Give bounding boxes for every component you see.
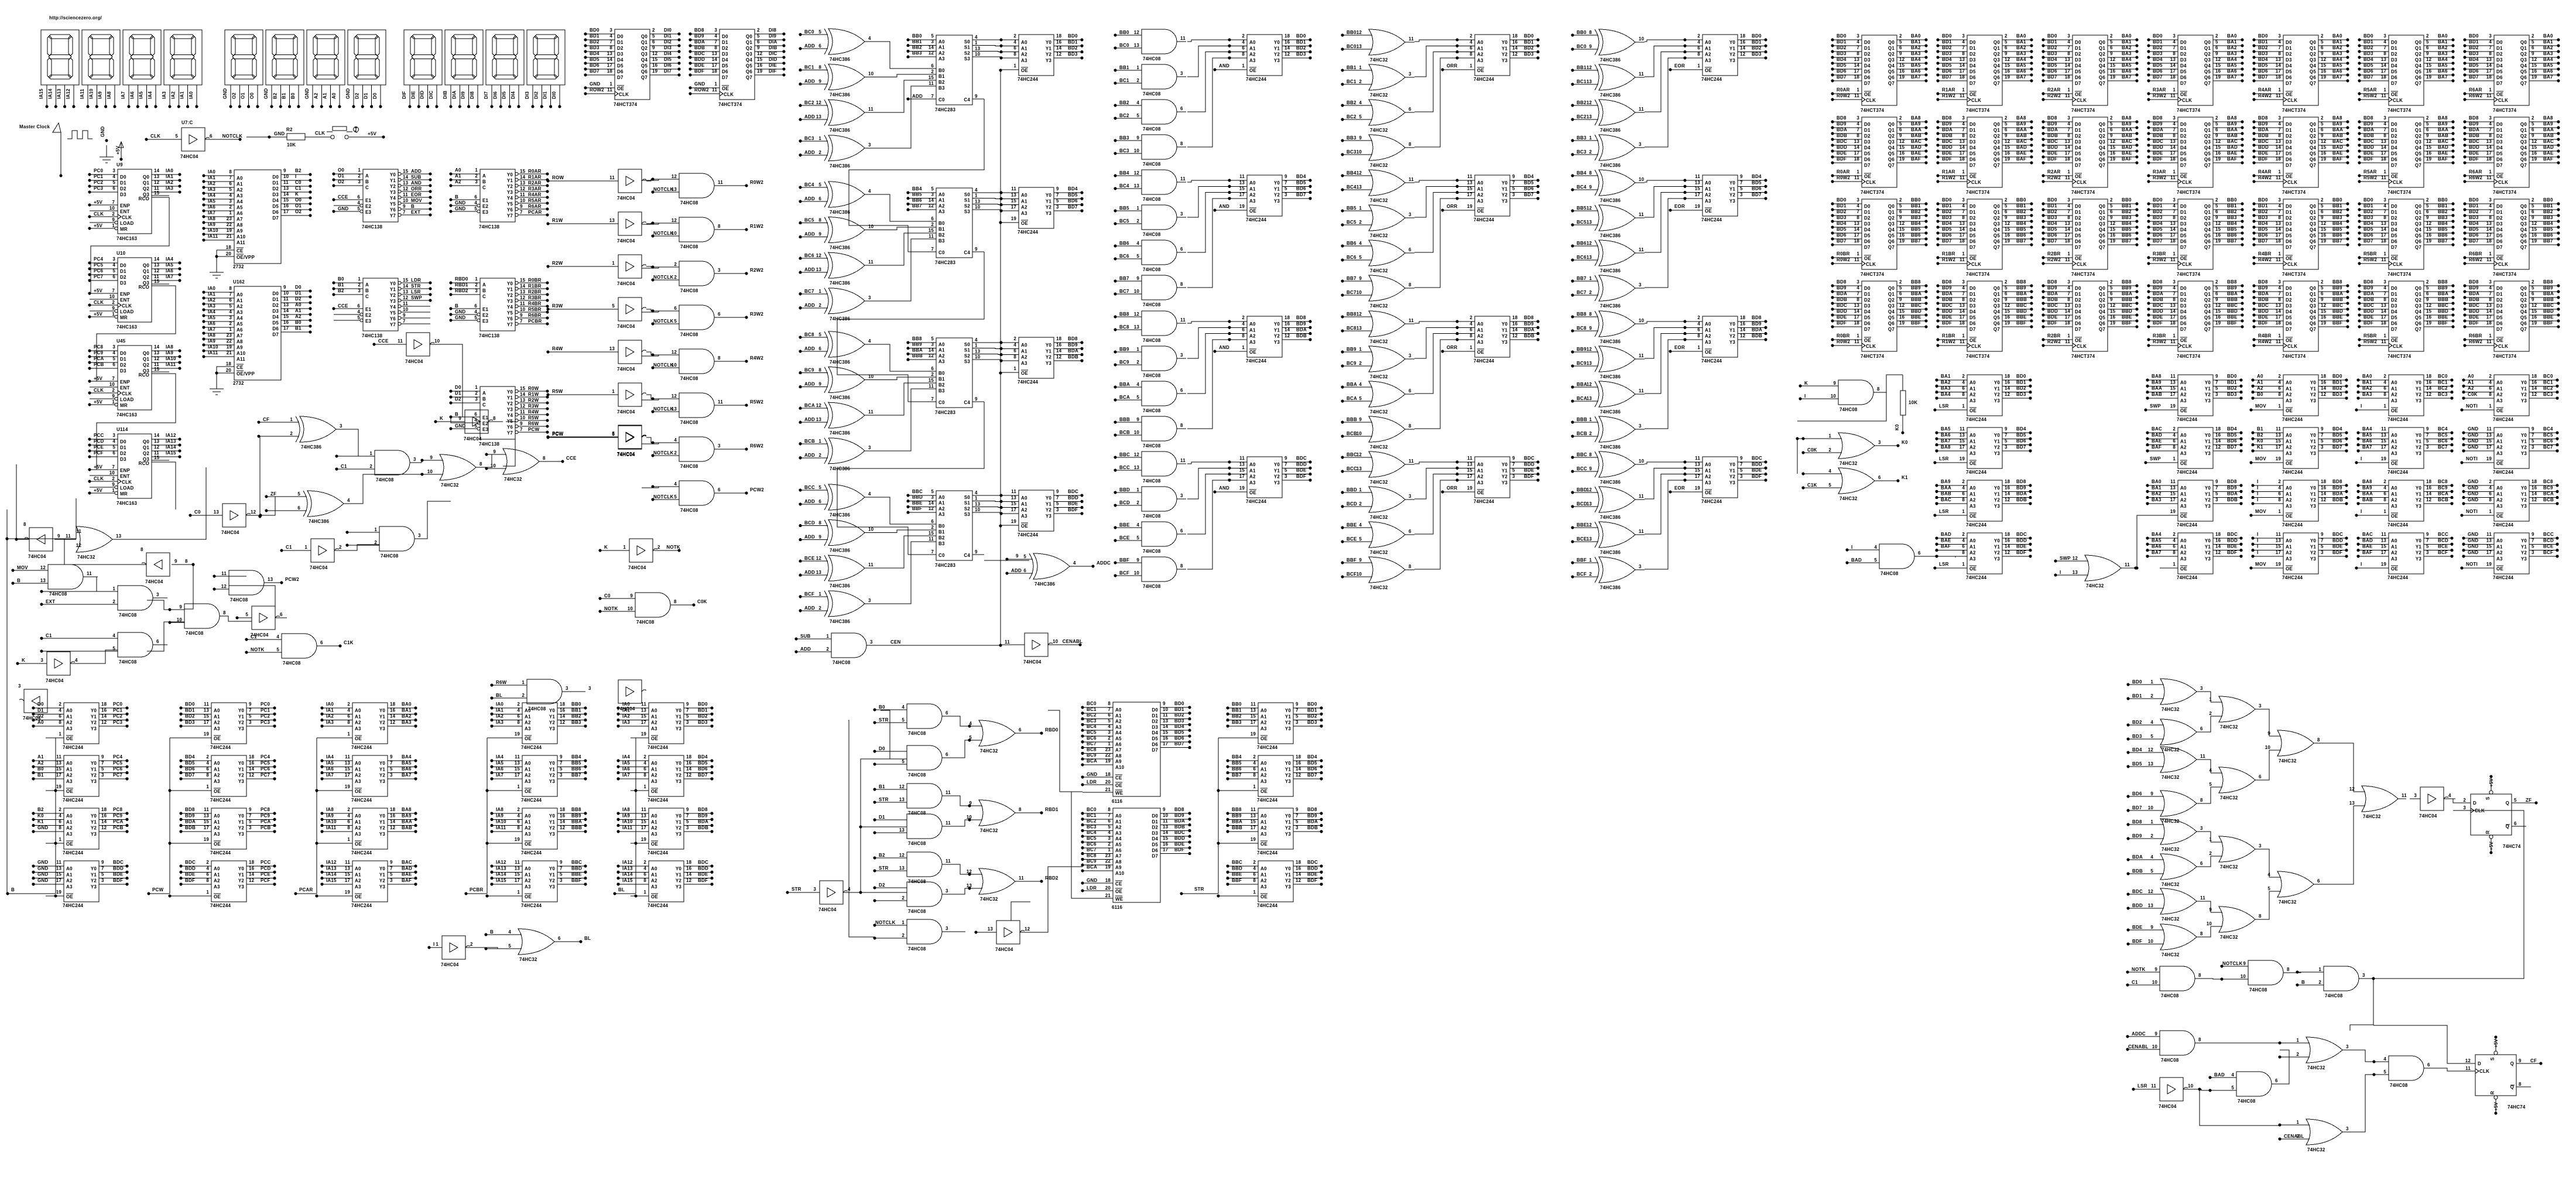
svg-text:12: 12 (154, 268, 160, 273)
svg-text:Y3: Y3 (1994, 398, 2000, 403)
svg-text:BC4: BC4 (1347, 184, 1356, 190)
svg-text:5: 5 (112, 444, 115, 450)
svg-text:B: B (365, 288, 369, 293)
svg-text:BA8: BA8 (2543, 115, 2553, 121)
svg-text:15: 15 (2215, 145, 2221, 150)
svg-text:B3: B3 (938, 388, 945, 394)
svg-text:13: 13 (1587, 79, 1592, 84)
svg-text:6: 6 (2005, 291, 2008, 296)
svg-text:A0: A0 (1705, 462, 1711, 467)
svg-text:IA9: IA9 (208, 338, 215, 344)
svg-text:A1: A1 (323, 93, 328, 99)
svg-text:D4: D4 (1969, 63, 1976, 69)
svg-text:2: 2 (475, 173, 478, 179)
svg-text:D5: D5 (2286, 151, 2292, 156)
svg-text:Y3: Y3 (2310, 398, 2317, 403)
svg-text:A1: A1 (2180, 386, 2187, 391)
svg-text:IA13: IA13 (166, 439, 176, 444)
svg-text:BD4: BD4 (2258, 221, 2268, 226)
svg-text:8: 8 (1180, 282, 1183, 287)
svg-text:11: 11 (2381, 175, 2386, 180)
svg-text:Q0: Q0 (2415, 40, 2421, 45)
svg-text:Q5: Q5 (2310, 151, 2316, 156)
svg-text:D1: D1 (1969, 46, 1976, 51)
svg-text:6: 6 (1962, 544, 1965, 549)
svg-text:GND: GND (455, 309, 465, 314)
svg-text:D6: D6 (2075, 239, 2081, 244)
svg-text:BDC: BDC (1296, 456, 1307, 461)
svg-text:Q7: Q7 (2520, 327, 2527, 332)
svg-text:D4: D4 (2496, 227, 2503, 232)
svg-text:ADD: ADD (804, 417, 815, 422)
svg-text:12: 12 (2215, 221, 2221, 226)
svg-text:13: 13 (816, 570, 822, 575)
svg-text:7: 7 (2383, 45, 2386, 50)
svg-text:9: 9 (403, 313, 406, 318)
svg-text:18: 18 (2170, 156, 2176, 162)
svg-text:Y3: Y3 (1729, 58, 1736, 63)
svg-text:6: 6 (818, 346, 821, 351)
svg-text:Y6: Y6 (390, 316, 396, 321)
svg-text:LOAD: LOAD (120, 485, 133, 491)
svg-text:C0K: C0K (697, 599, 707, 604)
svg-text:Y2: Y2 (1729, 193, 1736, 198)
svg-text:13: 13 (214, 509, 220, 515)
svg-text:IA15: IA15 (39, 88, 44, 99)
svg-text:3: 3 (2067, 197, 2070, 203)
svg-text:BD8: BD8 (1068, 336, 1078, 341)
svg-text:15: 15 (1899, 145, 1905, 150)
svg-text:OE: OE (2286, 338, 2293, 343)
svg-text:D6: D6 (2286, 321, 2292, 326)
svg-text:D2: D2 (2075, 52, 2081, 57)
svg-text:19: 19 (2215, 156, 2221, 162)
svg-text:13: 13 (283, 186, 289, 191)
svg-text:BB4: BB4 (2227, 221, 2237, 226)
svg-text:15: 15 (2170, 386, 2176, 391)
svg-text:12: 12 (2321, 57, 2327, 62)
svg-text:6: 6 (818, 499, 821, 504)
svg-text:R6AR: R6AR (528, 204, 542, 209)
svg-text:Q2: Q2 (2520, 216, 2527, 221)
svg-text:BAC: BAC (2227, 139, 2238, 144)
svg-text:5: 5 (612, 303, 615, 309)
svg-text:9: 9 (112, 394, 115, 399)
svg-text:O2: O2 (295, 209, 302, 214)
svg-text:BDD: BDD (2153, 145, 2163, 150)
svg-text:11: 11 (283, 180, 289, 185)
svg-text:BBD: BBD (1577, 487, 1587, 492)
svg-text:18: 18 (2170, 74, 2176, 80)
svg-text:5: 5 (1899, 203, 1902, 208)
svg-text:3: 3 (1856, 33, 1859, 39)
svg-text:A2: A2 (313, 93, 318, 99)
svg-text:B0: B0 (938, 371, 945, 376)
svg-text:9: 9 (1589, 466, 1592, 471)
svg-text:Y2: Y2 (1729, 52, 1736, 57)
svg-text:BA3: BA3 (2227, 51, 2237, 56)
svg-text:BAF: BAF (2122, 156, 2132, 162)
svg-text:6: 6 (2532, 291, 2534, 296)
svg-text:D1: D1 (2075, 210, 2081, 215)
svg-text:D1: D1 (2180, 128, 2187, 133)
svg-text:S1: S1 (964, 501, 971, 506)
svg-text:BD3: BD3 (590, 45, 600, 50)
svg-text:BDE: BDE (694, 63, 705, 68)
svg-text:14: 14 (1284, 327, 1290, 333)
svg-text:BB4: BB4 (2016, 221, 2026, 226)
svg-text:Q1: Q1 (2204, 128, 2211, 133)
svg-text:BA1: BA1 (2152, 485, 2161, 490)
svg-text:12: 12 (2005, 550, 2010, 555)
svg-text:11: 11 (2486, 339, 2492, 344)
svg-text:5: 5 (1284, 468, 1287, 473)
svg-text:3: 3 (870, 639, 873, 645)
svg-text:1: 1 (623, 545, 626, 550)
svg-text:R4AR: R4AR (528, 192, 542, 197)
svg-text:ORR: ORR (1447, 485, 1457, 491)
svg-text:9: 9 (112, 217, 115, 223)
svg-text:17: 17 (1854, 69, 1860, 74)
svg-text:BDF: BDF (2469, 156, 2479, 162)
svg-text:74HC244: 74HC244 (1474, 77, 1495, 82)
svg-text:7: 7 (1856, 291, 1859, 296)
svg-text:PC8: PC8 (94, 344, 104, 350)
svg-text:5: 5 (818, 332, 821, 337)
svg-text:A0: A0 (2286, 433, 2292, 438)
svg-text:Y3: Y3 (1729, 480, 1736, 485)
svg-text:11: 11 (929, 234, 934, 239)
svg-text:19: 19 (1899, 320, 1905, 326)
svg-text:2: 2 (1469, 315, 1472, 320)
svg-text:AND: AND (1219, 204, 1229, 209)
svg-text:D0: D0 (372, 93, 378, 99)
svg-text:8: 8 (1697, 333, 1700, 338)
svg-text:BB4: BB4 (1347, 170, 1356, 176)
svg-text:R5AR: R5AR (2363, 169, 2377, 175)
svg-text:IA7: IA7 (208, 327, 215, 332)
svg-text:A0: A0 (237, 292, 243, 297)
svg-text:15: 15 (2426, 309, 2432, 314)
svg-text:11: 11 (2125, 562, 2130, 567)
svg-text:BBD: BBD (2332, 309, 2343, 314)
svg-text:1: 1 (826, 634, 829, 639)
svg-text:BB9: BB9 (1119, 347, 1129, 352)
svg-text:19: 19 (2321, 320, 2327, 326)
svg-text:BD8: BD8 (1942, 279, 1952, 285)
svg-text:9: 9 (403, 204, 406, 209)
svg-text:7: 7 (520, 210, 523, 215)
svg-text:4: 4 (1697, 39, 1700, 45)
svg-text:BD6: BD6 (2153, 232, 2163, 238)
svg-text:11: 11 (283, 296, 289, 302)
svg-text:NOTK: NOTK (604, 606, 618, 611)
svg-text:Q7: Q7 (2204, 81, 2211, 86)
svg-text:9: 9 (2110, 297, 2113, 302)
svg-text:9: 9 (174, 559, 177, 564)
svg-text:3: 3 (229, 315, 232, 320)
svg-text:BBC: BBC (2332, 303, 2343, 308)
svg-text:74HC08: 74HC08 (1143, 478, 1161, 484)
svg-text:BDC: BDC (2363, 303, 2374, 308)
svg-text:19: 19 (2005, 238, 2010, 244)
svg-text:IA1: IA1 (180, 91, 185, 99)
svg-text:14: 14 (2486, 309, 2492, 314)
svg-text:Q4: Q4 (2204, 309, 2211, 314)
svg-text:BD3: BD3 (1837, 51, 1847, 56)
svg-text:BBB: BBB (2227, 297, 2238, 302)
svg-text:2: 2 (358, 173, 361, 179)
svg-text:15: 15 (2321, 63, 2327, 68)
svg-text:BAB: BAB (2122, 133, 2132, 138)
svg-text:Q7: Q7 (2204, 163, 2211, 168)
svg-text:18: 18 (1512, 315, 1518, 320)
svg-text:A3: A3 (1249, 480, 1256, 485)
svg-text:BDA: BDA (2047, 127, 2058, 132)
svg-text:B3: B3 (938, 85, 945, 91)
svg-text:D2: D2 (1969, 52, 1976, 57)
svg-text:BBC: BBC (912, 489, 923, 494)
svg-text:7: 7 (2489, 127, 2492, 132)
svg-text:Q6: Q6 (2415, 75, 2421, 80)
svg-text:BAA: BAA (2016, 127, 2027, 132)
svg-text:BDB: BDB (2153, 133, 2163, 138)
svg-text:BDF: BDF (2047, 156, 2057, 162)
svg-text:8: 8 (2278, 215, 2281, 220)
svg-text:9: 9 (2110, 215, 2113, 220)
svg-text:14: 14 (2065, 63, 2071, 68)
svg-text:2: 2 (2215, 33, 2218, 39)
svg-text:D4: D4 (1864, 309, 1871, 314)
svg-text:Q3: Q3 (2415, 303, 2421, 309)
svg-text:16: 16 (2110, 314, 2116, 320)
svg-text:74HC244: 74HC244 (2177, 470, 2198, 475)
svg-text:BA4: BA4 (1941, 392, 1951, 397)
svg-text:74HC32: 74HC32 (1370, 268, 1388, 273)
svg-text:74HC08: 74HC08 (1143, 162, 1161, 167)
svg-text:12: 12 (2110, 221, 2116, 226)
svg-text:7: 7 (1962, 45, 1965, 50)
svg-text:15: 15 (1695, 186, 1701, 191)
svg-text:19: 19 (1239, 485, 1245, 491)
svg-text:BC0: BC0 (1347, 44, 1356, 49)
svg-text:7: 7 (1056, 495, 1059, 500)
svg-text:A2: A2 (2257, 386, 2263, 391)
svg-text:STR: STR (411, 283, 421, 289)
svg-text:Q2: Q2 (2415, 297, 2421, 303)
svg-text:2: 2 (2426, 197, 2429, 203)
svg-text:Q6: Q6 (1993, 75, 2000, 80)
svg-text:11: 11 (2276, 93, 2281, 98)
svg-text:11: 11 (2486, 175, 2492, 180)
svg-text:9: 9 (2215, 133, 2218, 138)
svg-text:BA9: BA9 (2016, 121, 2026, 126)
svg-text:16: 16 (2005, 150, 2010, 156)
svg-text:GND: GND (222, 88, 228, 99)
svg-text:5: 5 (2110, 121, 2113, 126)
svg-text:1: 1 (2067, 169, 2070, 175)
svg-text:2: 2 (112, 211, 115, 217)
svg-text:8: 8 (2383, 215, 2386, 220)
svg-text:4: 4 (474, 200, 477, 206)
svg-text:11: 11 (1409, 318, 1414, 323)
svg-text:1: 1 (2173, 456, 2176, 461)
svg-text:8: 8 (1962, 550, 1965, 555)
svg-text:BD8: BD8 (2016, 479, 2026, 484)
svg-text:D0: D0 (272, 175, 279, 180)
svg-text:16: 16 (2426, 150, 2432, 156)
svg-text:16: 16 (2110, 150, 2116, 156)
svg-text:2: 2 (2426, 33, 2429, 39)
svg-text:15: 15 (1695, 468, 1701, 473)
svg-text:15: 15 (403, 278, 409, 283)
svg-text:R1W2: R1W2 (1942, 175, 1955, 180)
svg-text:BB3: BB3 (912, 50, 922, 56)
svg-text:D7: D7 (2391, 163, 2397, 168)
svg-text:A2: A2 (1477, 52, 1484, 57)
svg-text:Q3: Q3 (1993, 57, 2000, 63)
svg-text:D2: D2 (1969, 134, 1976, 139)
svg-text:74HC283: 74HC283 (935, 260, 956, 265)
svg-text:3: 3 (1180, 211, 1183, 217)
svg-text:17: 17 (2170, 392, 2176, 397)
svg-text:Y0: Y0 (1046, 343, 1052, 348)
svg-text:Q7: Q7 (1993, 245, 2000, 250)
svg-text:74HC386: 74HC386 (1600, 303, 1621, 309)
svg-text:D5: D5 (2496, 233, 2503, 238)
svg-text:7: 7 (1962, 209, 1965, 214)
svg-text:12: 12 (672, 218, 677, 223)
svg-text:Y0: Y0 (1994, 538, 2000, 543)
svg-text:IA8: IA8 (107, 91, 112, 99)
svg-text:GND: GND (274, 131, 285, 136)
svg-text:6: 6 (1180, 106, 1183, 111)
svg-text:14: 14 (1056, 348, 1062, 354)
svg-text:BCA: BCA (804, 403, 815, 408)
svg-text:BC9: BC9 (804, 368, 814, 373)
svg-text:CCE: CCE (566, 456, 577, 461)
svg-text:Y1: Y1 (2205, 491, 2211, 497)
svg-text:4: 4 (1136, 241, 1139, 246)
svg-text:BBC: BBC (1577, 452, 1587, 457)
svg-text:7: 7 (2321, 432, 2324, 437)
svg-text:A3: A3 (1477, 199, 1484, 204)
svg-text:13: 13 (268, 577, 273, 582)
svg-text:2: 2 (1136, 78, 1139, 83)
svg-text:4: 4 (1856, 121, 1859, 126)
svg-text:BBE: BBE (912, 500, 923, 505)
svg-text:D7: D7 (2180, 81, 2187, 86)
svg-text:2: 2 (1899, 197, 1902, 203)
svg-text:12: 12 (1587, 522, 1592, 528)
svg-text:16: 16 (2426, 69, 2432, 74)
svg-text:BD8: BD8 (1296, 315, 1306, 320)
svg-text:3: 3 (1639, 423, 1642, 429)
svg-text:14: 14 (1740, 46, 1746, 51)
svg-text:21: 21 (227, 350, 232, 355)
svg-text:74HC08: 74HC08 (1143, 126, 1161, 132)
svg-text:BD6: BD6 (2227, 439, 2237, 444)
svg-text:Q2: Q2 (2520, 134, 2527, 139)
svg-text:2: 2 (818, 150, 821, 155)
svg-text:BD6: BD6 (2258, 69, 2268, 74)
svg-text:BB0: BB0 (2438, 197, 2448, 203)
svg-text:A0: A0 (2180, 380, 2187, 385)
svg-text:17: 17 (2170, 150, 2176, 156)
svg-text:BB6: BB6 (1347, 241, 1356, 246)
svg-text:D2: D2 (354, 93, 359, 99)
svg-text:1: 1 (2067, 333, 2070, 338)
svg-text:BD5: BD5 (590, 57, 600, 62)
svg-text:16: 16 (1899, 314, 1905, 320)
svg-text:13: 13 (1960, 221, 1965, 226)
svg-text:11: 11 (2170, 93, 2176, 98)
svg-text:B1: B1 (938, 377, 945, 382)
svg-text:O0: O0 (249, 93, 255, 99)
svg-text:12: 12 (2426, 139, 2432, 144)
svg-text:OE: OE (1864, 92, 1871, 97)
svg-text:A5: A5 (237, 321, 243, 327)
svg-text:B1: B1 (2257, 426, 2263, 432)
svg-text:BD4: BD4 (1752, 174, 1762, 179)
svg-text:AND: AND (1219, 63, 1229, 69)
svg-text:5: 5 (1136, 395, 1139, 400)
svg-text:12: 12 (1134, 170, 1140, 176)
svg-text:BAF: BAF (2152, 444, 2161, 450)
svg-text:R3W: R3W (528, 403, 539, 409)
svg-text:74HCT374: 74HCT374 (1966, 272, 1990, 277)
svg-text:BB7: BB7 (1577, 276, 1587, 281)
svg-text:7: 7 (931, 549, 934, 555)
svg-text:A3: A3 (2286, 398, 2292, 403)
svg-text:BBA: BBA (2122, 291, 2132, 296)
svg-text:C: C (482, 294, 486, 299)
svg-text:5: 5 (1359, 114, 1362, 119)
svg-text:8: 8 (2173, 550, 2176, 555)
svg-text:Q2: Q2 (2415, 216, 2421, 221)
svg-text:LSR: LSR (411, 289, 421, 295)
svg-text:74HC32: 74HC32 (1370, 339, 1388, 344)
svg-text:Y7: Y7 (390, 213, 396, 218)
svg-text:74HC04: 74HC04 (628, 565, 646, 570)
svg-text:A7: A7 (237, 333, 243, 338)
svg-text:15: 15 (2110, 145, 2116, 150)
svg-text:6: 6 (474, 303, 477, 309)
svg-text:BD2: BD2 (1296, 46, 1306, 51)
svg-text:2: 2 (2005, 115, 2008, 121)
svg-text:11: 11 (403, 192, 408, 197)
svg-text:D5: D5 (2180, 69, 2187, 74)
svg-text:BDC: BDC (2258, 139, 2269, 144)
svg-text:15: 15 (2321, 309, 2327, 314)
svg-text:Y3: Y3 (1274, 340, 1280, 345)
svg-text:D6: D6 (2075, 321, 2081, 326)
svg-text:D3: D3 (2180, 221, 2187, 227)
svg-text:BAD: BAD (1911, 145, 1921, 150)
svg-text:74HC386: 74HC386 (830, 281, 851, 286)
svg-text:9: 9 (283, 168, 286, 173)
svg-text:BCE: BCE (1347, 536, 1357, 542)
svg-text:17: 17 (2065, 69, 2071, 74)
svg-text:ADD: ADD (804, 606, 815, 611)
svg-text:11: 11 (1639, 529, 1644, 534)
svg-text:3: 3 (931, 495, 934, 500)
svg-text:11: 11 (1467, 174, 1472, 179)
svg-text:D4: D4 (2496, 309, 2503, 314)
svg-text:5: 5 (1023, 554, 1026, 559)
svg-text:BBF: BBF (912, 506, 922, 511)
svg-text:8: 8 (714, 45, 717, 50)
